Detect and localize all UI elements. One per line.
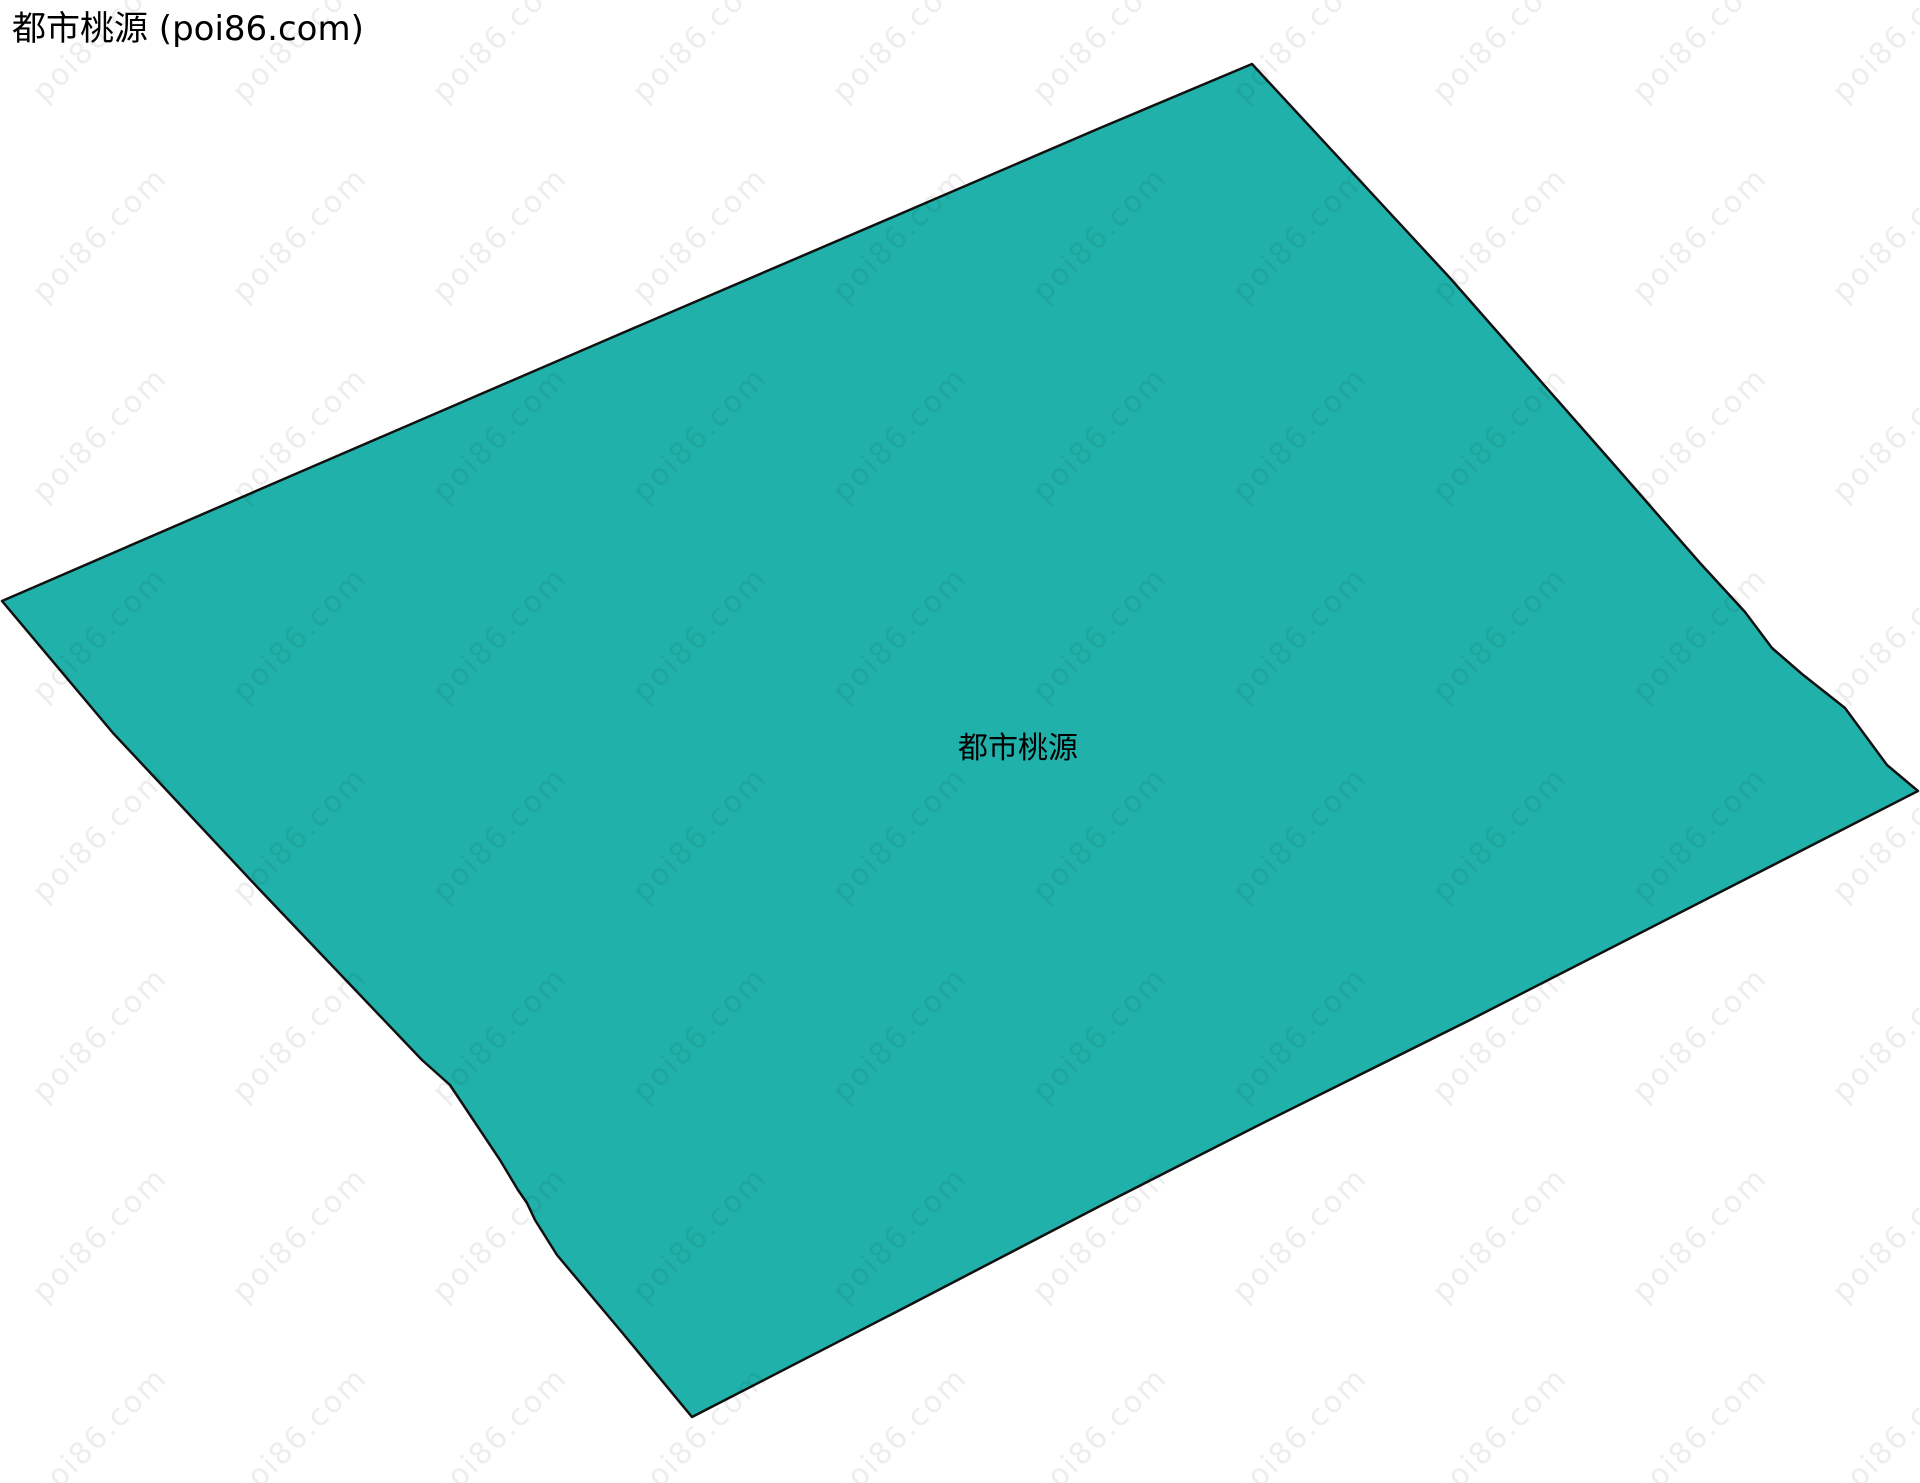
map-page: poi86.compoi86.compoi86.compoi86.compoi8… <box>0 0 1920 1483</box>
region-label: 都市桃源 <box>958 723 1078 767</box>
page-title: 都市桃源 (poi86.com) <box>12 8 364 51</box>
